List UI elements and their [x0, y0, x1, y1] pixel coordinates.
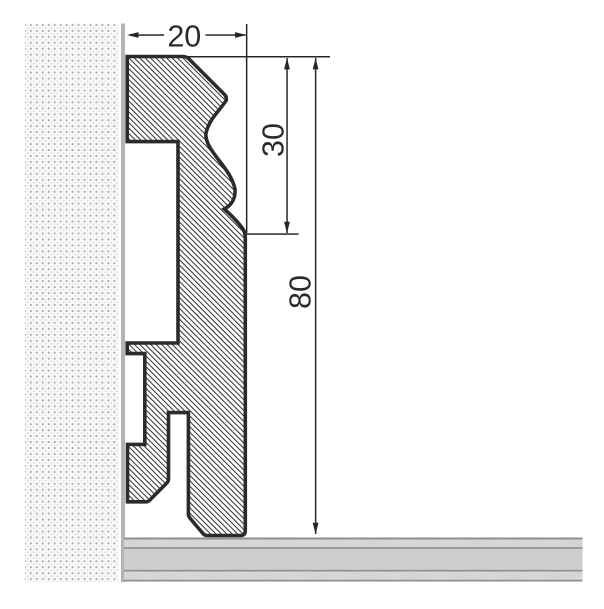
svg-text:80: 80	[284, 275, 318, 309]
svg-text:20: 20	[167, 20, 201, 54]
svg-text:30: 30	[257, 123, 291, 157]
